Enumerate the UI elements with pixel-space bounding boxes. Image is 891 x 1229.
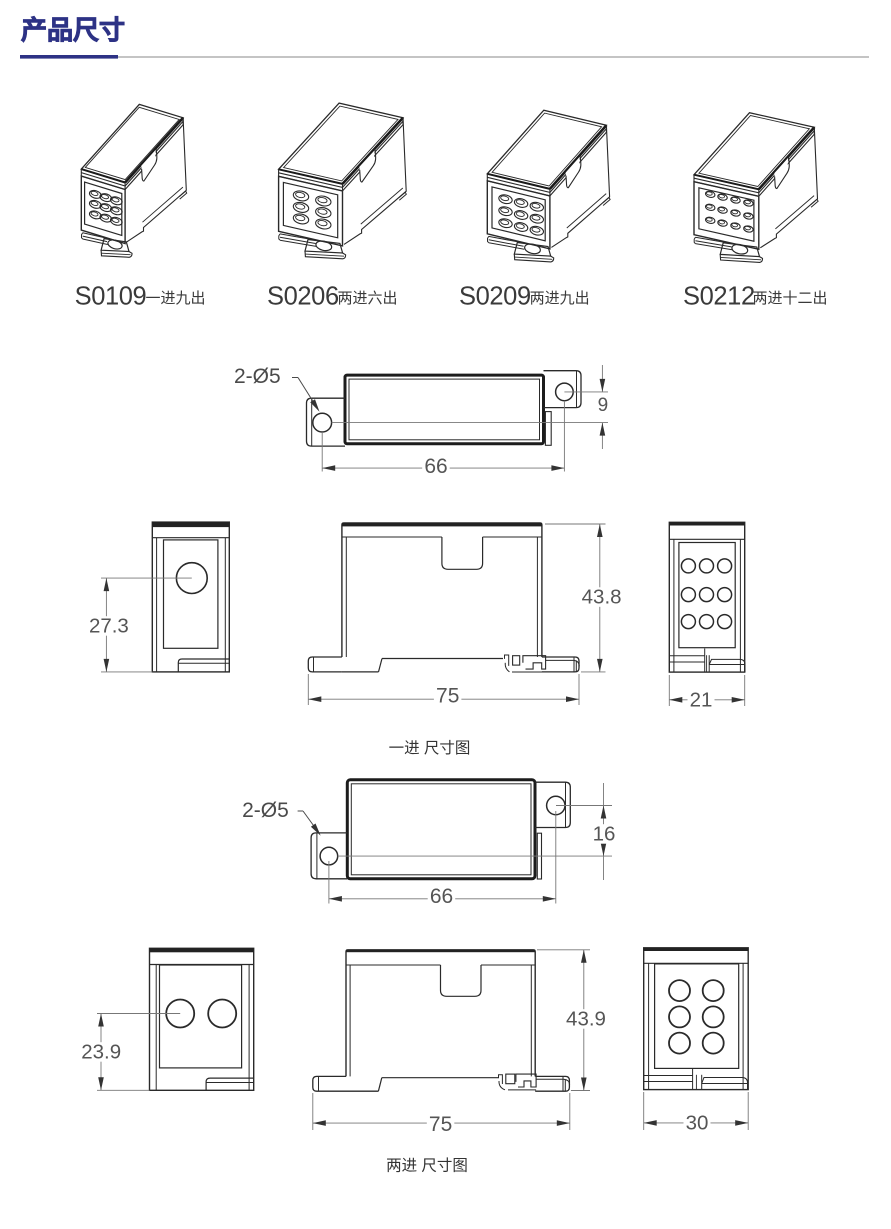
svg-text:9: 9 (598, 395, 609, 416)
svg-text:43.8: 43.8 (582, 586, 622, 609)
svg-text:一进九出: 一进九出 (146, 290, 206, 307)
svg-text:两进十二出: 两进十二出 (753, 290, 828, 307)
svg-text:27.3: 27.3 (89, 614, 129, 637)
svg-text:16: 16 (593, 822, 616, 845)
svg-text:两进六出: 两进六出 (338, 290, 398, 307)
svg-text:21: 21 (690, 689, 713, 712)
svg-text:S0206: S0206 (267, 283, 339, 311)
svg-text:23.9: 23.9 (81, 1040, 121, 1063)
svg-text:S0209: S0209 (459, 283, 531, 311)
svg-text:产品尺寸: 产品尺寸 (21, 15, 125, 45)
svg-text:S0212: S0212 (683, 283, 755, 311)
svg-text:2-Ø5: 2-Ø5 (242, 799, 289, 822)
svg-text:75: 75 (429, 1113, 452, 1136)
svg-text:两进九出: 两进九出 (530, 290, 590, 307)
svg-text:两进 尺寸图: 两进 尺寸图 (386, 1156, 468, 1174)
svg-text:30: 30 (686, 1111, 709, 1134)
svg-text:66: 66 (430, 885, 453, 908)
svg-text:43.9: 43.9 (566, 1007, 606, 1030)
svg-text:75: 75 (436, 685, 459, 708)
svg-text:2-Ø5: 2-Ø5 (234, 365, 281, 388)
svg-text:S0109: S0109 (75, 283, 147, 311)
svg-text:一进 尺寸图: 一进 尺寸图 (389, 739, 471, 757)
svg-text:66: 66 (424, 455, 447, 478)
